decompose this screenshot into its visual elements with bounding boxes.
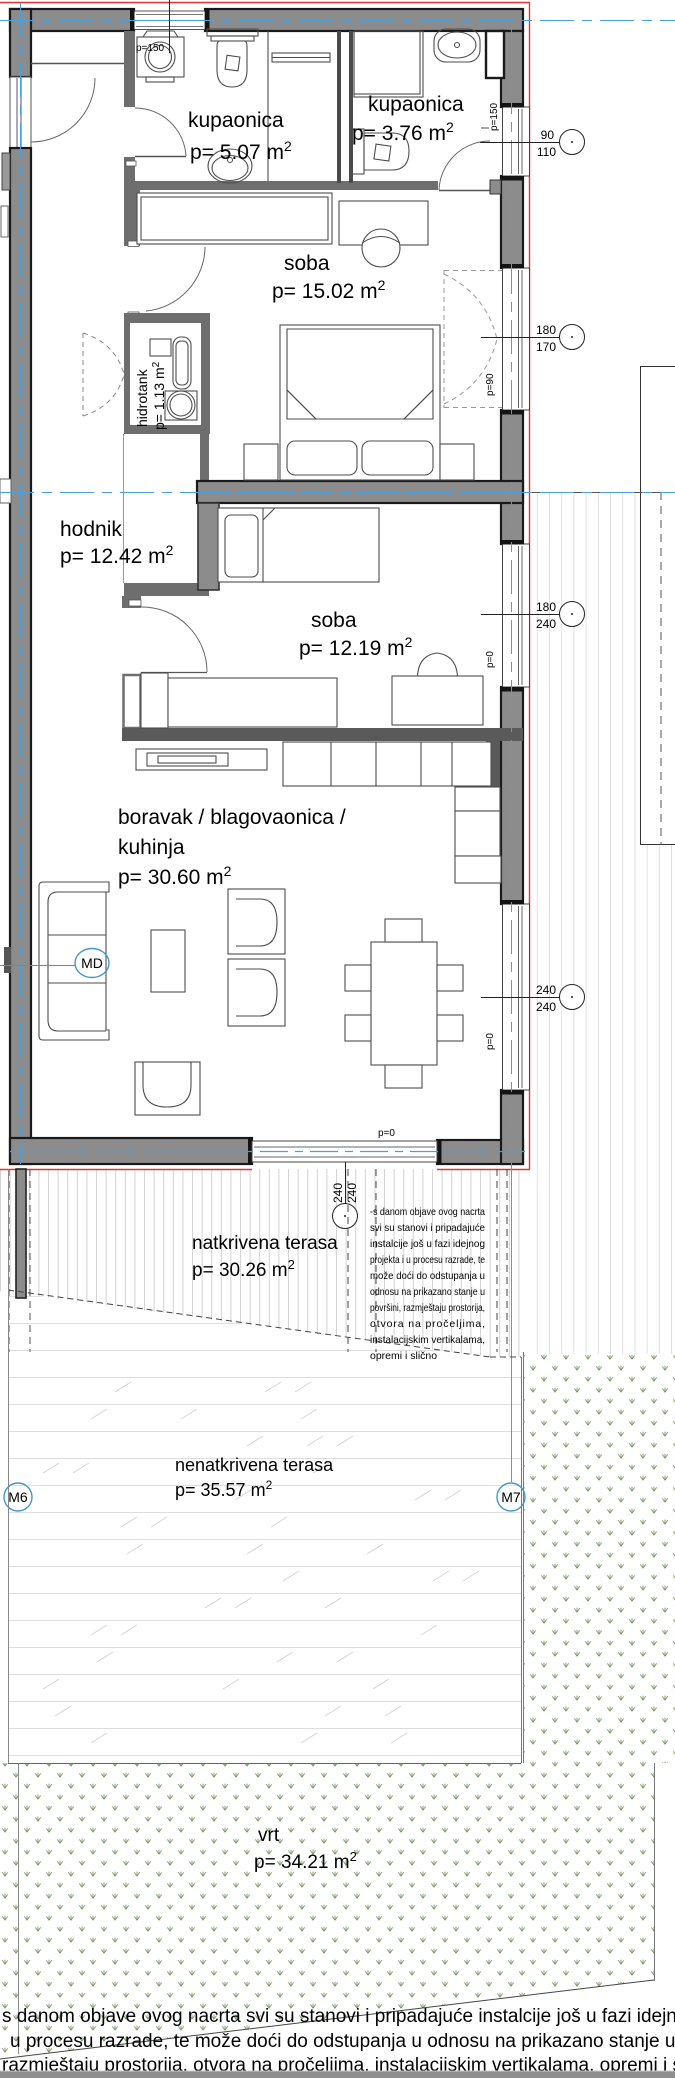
- svg-text:p=0: p=0: [485, 651, 496, 668]
- svg-text:soba: soba: [311, 609, 357, 632]
- svg-text:170: 170: [536, 340, 556, 354]
- svg-text:površini, razmještaju prostori: površini, razmještaju prostorija,: [370, 1302, 485, 1314]
- svg-text:90: 90: [541, 128, 555, 142]
- svg-text:otvora na pročeljima,: otvora na pročeljima,: [370, 1318, 485, 1330]
- svg-text:u procesu razrade, te može doć: u procesu razrade, te može doći do odstu…: [10, 2031, 675, 2052]
- svg-text:M7: M7: [501, 1489, 521, 1505]
- svg-text:vrt: vrt: [258, 1825, 280, 1846]
- svg-text:boravak / blagovaonica /: boravak / blagovaonica /: [118, 806, 346, 829]
- svg-text:kupaonica: kupaonica: [188, 109, 284, 132]
- svg-text:p=150: p=150: [489, 102, 500, 131]
- svg-text:p=150: p=150: [136, 43, 165, 54]
- svg-text:kupaonica: kupaonica: [368, 93, 464, 116]
- svg-text:s danom objave ovog nacrta svi: s danom objave ovog nacrta svi su stanov…: [2, 2006, 675, 2027]
- svg-text:240: 240: [331, 1183, 345, 1203]
- svg-text:p= 35.57 m2: p= 35.57 m2: [175, 1478, 273, 1500]
- svg-text:p= 30.60 m2: p= 30.60 m2: [118, 863, 232, 889]
- svg-text:p= 15.02 m2: p= 15.02 m2: [272, 277, 386, 303]
- svg-text:p=0: p=0: [378, 1128, 395, 1139]
- svg-text:kuhinja: kuhinja: [118, 836, 185, 859]
- svg-text:natkrivena terasa: natkrivena terasa: [192, 1233, 338, 1254]
- svg-text:instalcije još u fazi idejnog: instalcije još u fazi idejnog: [370, 1238, 485, 1250]
- svg-text:240: 240: [536, 1000, 556, 1014]
- svg-text:p= 12.42 m2: p= 12.42 m2: [60, 542, 174, 568]
- svg-text:p=90: p=90: [485, 373, 496, 396]
- svg-text:240: 240: [536, 983, 556, 997]
- svg-text:p=0: p=0: [485, 1033, 496, 1050]
- svg-text:instalacijskim vertikalama,: instalacijskim vertikalama,: [370, 1334, 485, 1346]
- svg-text:hidrotank: hidrotank: [134, 368, 150, 427]
- svg-text:p= 30.26 m2: p= 30.26 m2: [192, 1257, 295, 1281]
- svg-text:odnosu na prikazano stanje u: odnosu na prikazano stanje u: [370, 1286, 485, 1298]
- svg-text:180: 180: [536, 323, 556, 337]
- svg-text:180: 180: [536, 600, 556, 614]
- svg-text:p= 34.21 m2: p= 34.21 m2: [254, 1849, 357, 1873]
- svg-text:p= 12.19 m2: p= 12.19 m2: [299, 634, 413, 660]
- svg-text:p= 5.07 m2: p= 5.07 m2: [190, 138, 292, 164]
- svg-text:nenatkrivena terasa: nenatkrivena terasa: [175, 1455, 334, 1475]
- svg-text:projekta i u procesu razrade,: projekta i u procesu razrade, te: [370, 1254, 485, 1266]
- svg-text:MD: MD: [81, 955, 103, 971]
- svg-text:soba: soba: [284, 252, 330, 275]
- svg-text:240: 240: [345, 1183, 359, 1203]
- svg-text:M6: M6: [8, 1489, 28, 1505]
- svg-text:p= 3.76 m2: p= 3.76 m2: [352, 119, 454, 145]
- svg-text:-s danom objave ovog nacrta: -s danom objave ovog nacrta: [370, 1206, 485, 1218]
- svg-text:240: 240: [536, 617, 556, 631]
- svg-text:hodnik: hodnik: [60, 518, 122, 541]
- svg-text:110: 110: [537, 145, 556, 159]
- svg-text:svi su stanovi i pripadajuće: svi su stanovi i pripadajuće: [370, 1222, 485, 1234]
- svg-text:opremi i slično: opremi i slično: [370, 1350, 437, 1362]
- svg-text:može doći do odstupanja u: može doći do odstupanja u: [370, 1270, 485, 1282]
- svg-text:p= 1.13 m2: p= 1.13 m2: [151, 361, 167, 430]
